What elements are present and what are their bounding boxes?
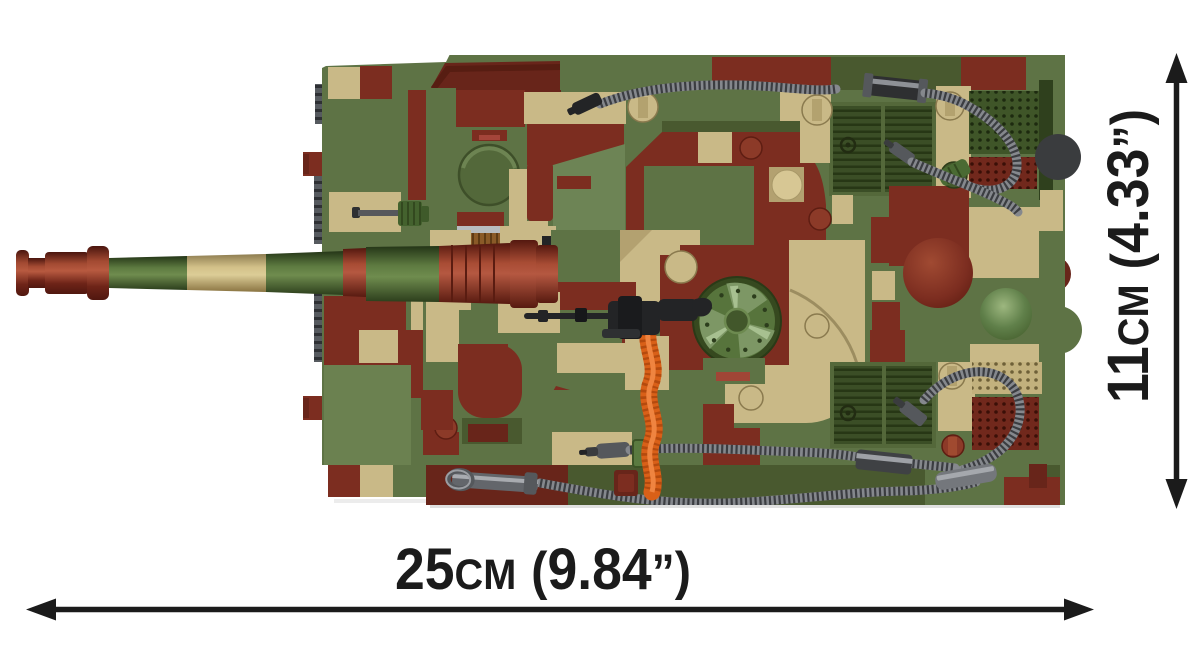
svg-text:25CM (9.84”): 25CM (9.84”) [395, 537, 691, 602]
svg-text:11CM (4.33”): 11CM (4.33”) [1096, 109, 1161, 403]
